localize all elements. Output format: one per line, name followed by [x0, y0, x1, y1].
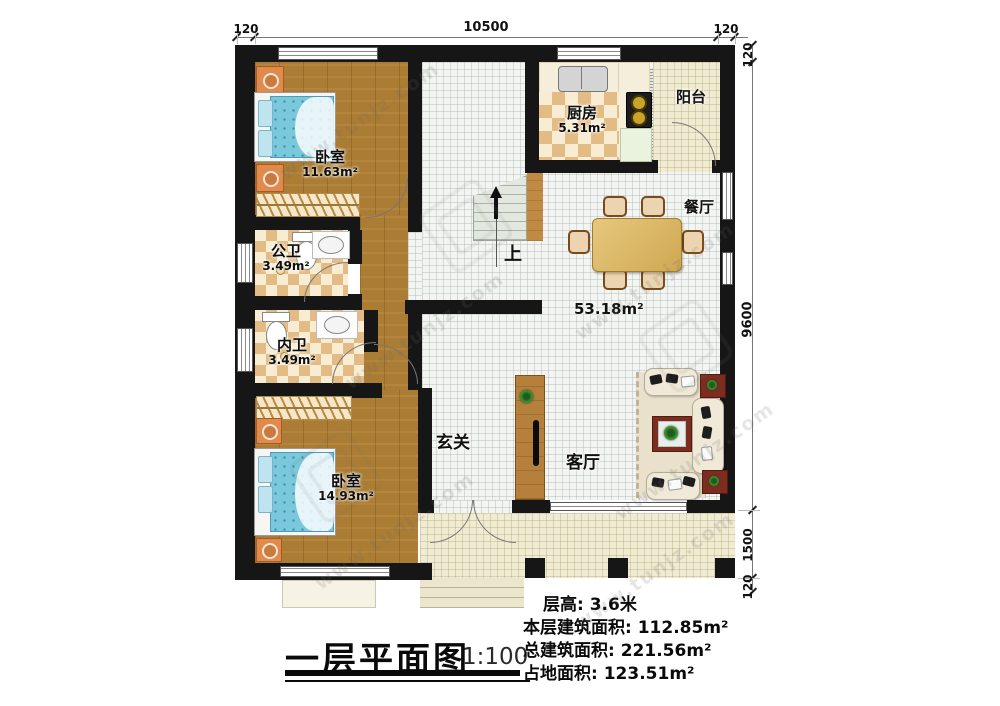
wall-left	[235, 45, 255, 580]
dining-chair-icon	[603, 269, 627, 290]
wardrobe-icon	[256, 193, 360, 217]
wall-public-bath-right-a	[348, 230, 362, 264]
title-underline-thick	[285, 670, 520, 676]
sofa-pillow-icon	[701, 406, 712, 419]
window-bedroom-top	[278, 47, 378, 60]
window-kitchen	[557, 47, 621, 60]
burner-icon	[631, 95, 647, 111]
info-footprint-area: 占地面积: 123.51m²	[523, 659, 694, 684]
stair-landing	[527, 173, 543, 241]
corridor-opening-floor	[408, 232, 422, 300]
plant-icon	[709, 476, 719, 486]
floor-plan-sheet: 卧室 11.63m² 卧室 14.93m² 厨房 5.31m² 公卫 3.49m…	[0, 0, 1000, 706]
sink-icon	[318, 236, 344, 254]
dim-top-120-left: 120	[226, 22, 266, 36]
dimension-line-top	[237, 37, 748, 38]
ext-line	[738, 510, 760, 511]
kitchen-label: 厨房 5.31m²	[552, 106, 612, 134]
sink-icon	[324, 316, 350, 334]
entry-label: 玄关	[436, 428, 470, 453]
dining-label: 餐厅	[684, 196, 714, 217]
plan-scale: 1:100	[462, 644, 528, 670]
porch-column-3	[715, 558, 735, 578]
dim-top-120-right: 120	[706, 22, 746, 36]
porch-column-1	[525, 558, 545, 578]
fridge-icon	[620, 128, 652, 162]
pillow-icon	[258, 100, 273, 127]
public-bathroom-label: 公卫 3.49m²	[256, 244, 316, 272]
tv-icon	[533, 420, 539, 466]
dining-chair-icon	[603, 196, 627, 217]
window-public-bath	[237, 243, 253, 283]
plant-icon	[707, 380, 717, 390]
nightstand-icon	[256, 66, 284, 94]
dim-top-10500: 10500	[460, 20, 512, 35]
dim-right-120-top: 120	[741, 35, 755, 75]
dim-right-1500: 1500	[741, 519, 755, 571]
dining-chair-icon	[568, 230, 590, 254]
pillow-icon	[258, 130, 273, 157]
nightstand-icon	[256, 418, 282, 444]
title-underline-thin	[285, 680, 530, 682]
wardrobe-icon	[256, 396, 352, 420]
dining-chair-icon	[641, 196, 665, 217]
wall-kitchen-left	[525, 62, 539, 160]
window-inner-bath	[237, 328, 253, 372]
pillow-icon	[258, 486, 273, 513]
wall-bottom-living-a	[512, 500, 550, 513]
sink-divider	[581, 67, 582, 89]
info-floor-area: 本层建筑面积: 112.85m²	[523, 613, 728, 638]
living-label: 客厅	[566, 448, 600, 473]
dim-right-9600: 9600	[741, 294, 756, 346]
burner-icon	[631, 110, 647, 126]
info-total-area: 总建筑面积: 221.56m²	[523, 636, 711, 661]
nightstand-icon	[256, 538, 282, 562]
stairs-up-label: 上	[504, 240, 522, 266]
plant-icon	[520, 390, 533, 403]
window-dining-a	[722, 172, 733, 220]
wall-bedroom-bath	[248, 215, 360, 230]
inner-bathroom-label: 内卫 3.49m²	[262, 338, 322, 366]
window-dining-b	[722, 252, 733, 285]
kitchen-sink-icon	[558, 66, 608, 92]
plant-icon	[664, 426, 678, 440]
porch-steps	[420, 578, 524, 608]
dim-right-120-bottom: 120	[741, 567, 755, 607]
pillow-icon	[258, 456, 273, 483]
balcony-label: 阳台	[676, 86, 706, 107]
porch-column-2	[608, 558, 628, 578]
